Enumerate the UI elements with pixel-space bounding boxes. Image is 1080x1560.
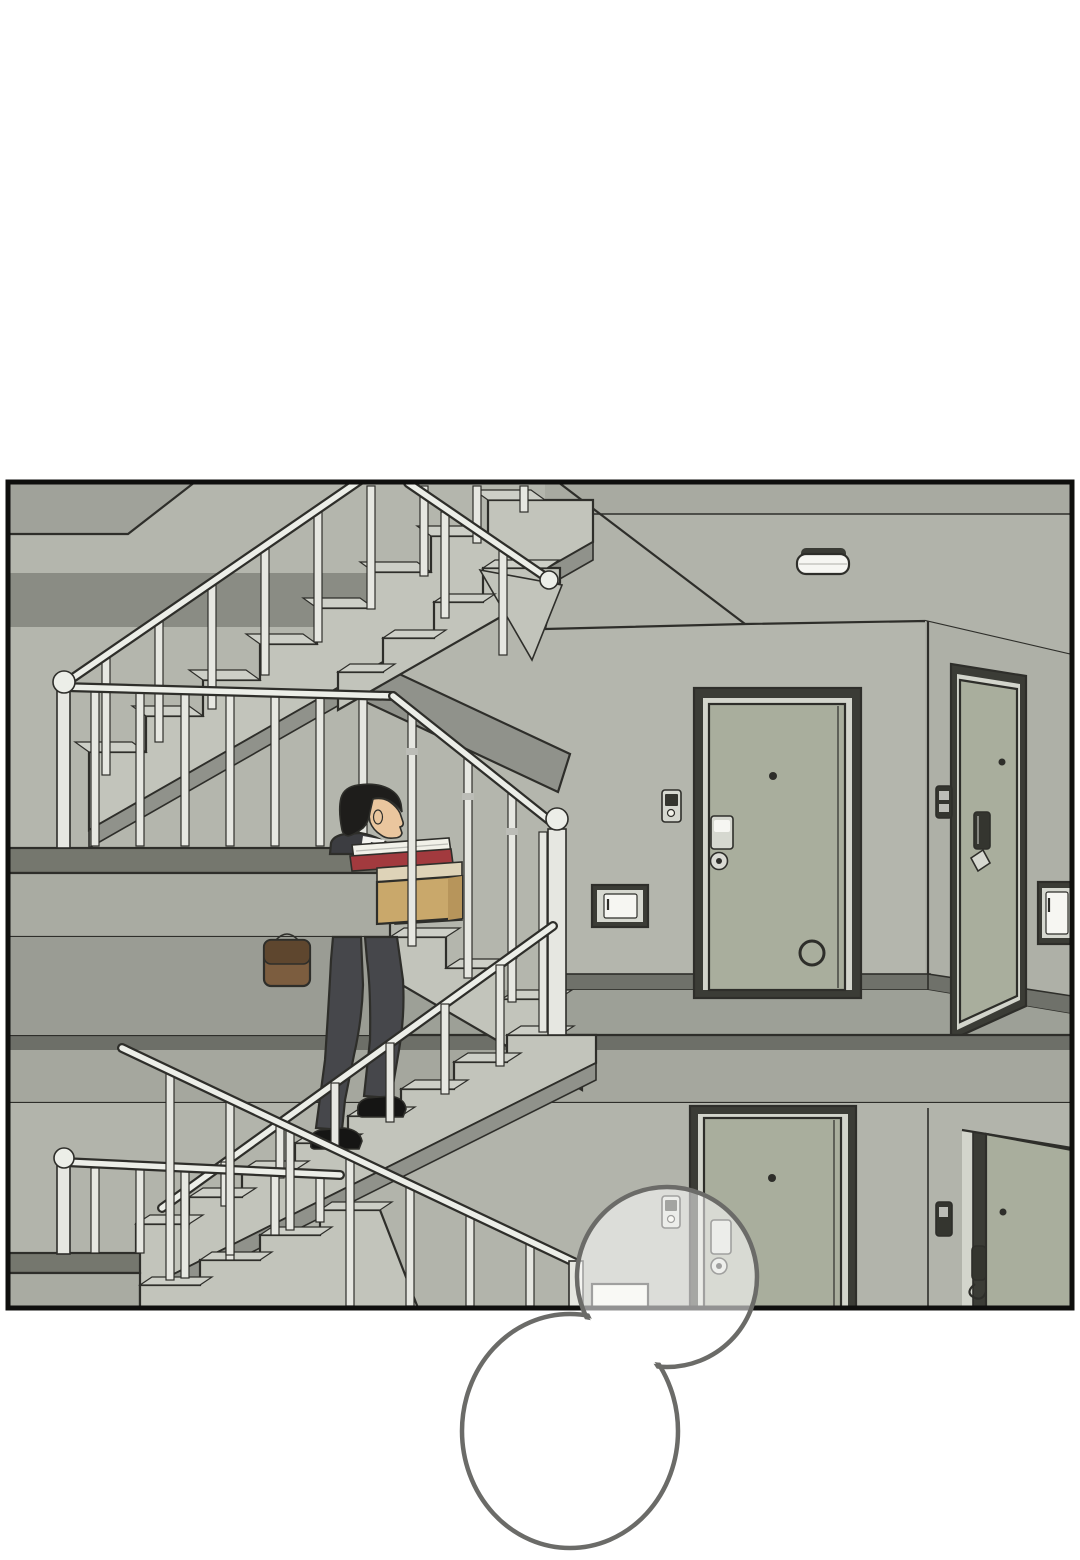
peephole: [769, 772, 777, 780]
newel-post-mid: [57, 688, 70, 848]
lower-peephole: [768, 1174, 776, 1182]
comic-page: [0, 0, 1080, 1560]
lower-side-keypad: [972, 1246, 986, 1280]
man-ear: [374, 810, 383, 824]
finial-main: [546, 808, 568, 830]
finial-bottom: [54, 1148, 74, 1168]
wall-utility-box-right: [1038, 882, 1072, 944]
man-right-shoe: [358, 1096, 406, 1117]
panel-scene: [8, 479, 1072, 1310]
shoulder-bag: [264, 934, 310, 986]
ceiling-lamp: [797, 548, 849, 574]
doorbell-side: [936, 786, 952, 818]
box-side-shade: [448, 876, 462, 920]
finial-top: [540, 571, 558, 589]
side-peephole: [999, 759, 1006, 766]
ceiling-top-strip: [545, 482, 1072, 514]
wall-utility-box-left: [592, 885, 648, 927]
doorbell-front: [662, 790, 681, 822]
comic-panel-art: [0, 0, 1080, 1560]
side-door-keypad: [974, 812, 990, 849]
side-door-leaf: [960, 680, 1017, 1022]
finial-mid: [53, 671, 75, 693]
